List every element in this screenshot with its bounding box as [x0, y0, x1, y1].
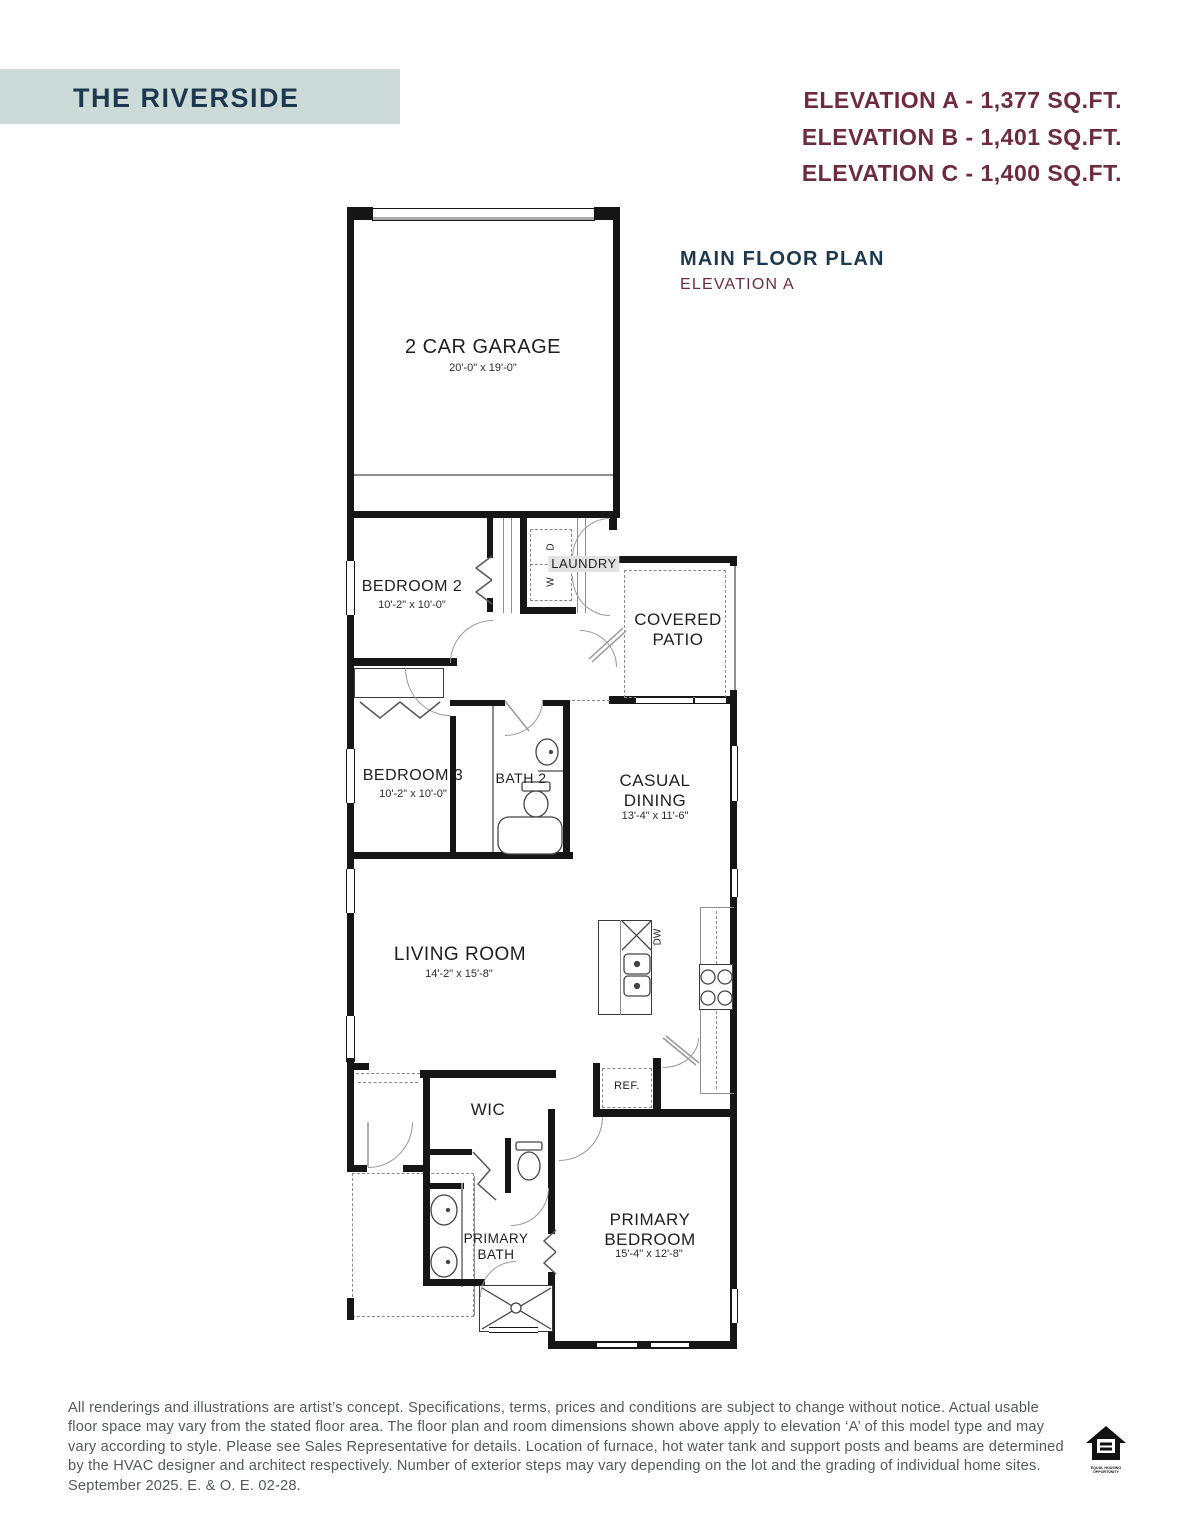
patio-edge: [734, 563, 736, 698]
window: [346, 561, 355, 615]
window: [346, 1016, 355, 1062]
window-sill: [637, 1341, 651, 1349]
wall: [420, 1070, 556, 1078]
door-arc: [480, 1261, 516, 1297]
living-room-label: LIVING ROOM: [394, 944, 526, 967]
faucet: [550, 751, 553, 754]
wall: [423, 1279, 485, 1286]
door-arc: [405, 668, 450, 716]
wic-label: WIC: [471, 1100, 506, 1120]
opening: [358, 1082, 418, 1083]
garage-apron-line: [354, 474, 613, 476]
bifold-closet-doors: [473, 1152, 496, 1200]
primary-bath-label: PRIMARY BATH: [456, 1231, 536, 1263]
primary-toilet: [518, 1152, 540, 1180]
covered-patio-label: COVERED PATIO: [623, 610, 733, 651]
counter-edge: [700, 1093, 734, 1094]
fridge-label: REF.: [614, 1080, 640, 1093]
brochure-page: { "header": { "title": "THE RIVERSIDE", …: [0, 0, 1187, 1536]
wall: [609, 518, 617, 530]
opening: [572, 700, 610, 701]
dryer-label: D: [546, 543, 557, 550]
bath2-label: BATH 2: [496, 770, 547, 787]
bath2-sink: [536, 739, 558, 765]
disclaimer-text: All renderings and illustrations are art…: [68, 1399, 1070, 1496]
wall: [593, 1109, 737, 1117]
island-divider: [620, 920, 621, 1015]
bifold-closet-doors: [476, 556, 492, 604]
door-arc: [368, 1122, 413, 1168]
window: [346, 869, 355, 913]
casual-dining-label: CASUAL DINING: [605, 771, 705, 812]
wall: [505, 1138, 511, 1193]
garage-label: 2 CAR GARAGE: [405, 335, 561, 359]
hall-line: [511, 518, 512, 613]
wall: [347, 1058, 354, 1170]
wall: [347, 207, 354, 518]
wall: [594, 207, 620, 220]
floor-plan: 2 CAR GARAGE 20'-0" x 19'-0" BEDROOM 2 1…: [0, 0, 1187, 1536]
door-arc: [505, 700, 543, 736]
window: [489, 1327, 538, 1333]
laundry-label: LAUNDRY: [548, 556, 619, 572]
wall: [520, 518, 527, 613]
window: [636, 697, 693, 704]
wall: [347, 1165, 367, 1172]
garage-dims: 20'-0" x 19'-0": [449, 362, 517, 374]
wall: [450, 716, 456, 858]
double-door-chevrons: [544, 1230, 556, 1274]
wall: [520, 607, 576, 614]
window: [695, 697, 726, 704]
window: [731, 1289, 738, 1323]
primary-bedroom-dims: 15'-4" x 12'-8": [615, 1248, 683, 1260]
dishwasher-label: DW: [653, 929, 664, 946]
wall: [730, 556, 737, 566]
window: [731, 746, 738, 801]
bedroom2-label: BEDROOM 2: [362, 577, 463, 596]
bedroom2-dims: 10'-2" x 10'-0": [378, 599, 446, 611]
wall: [487, 598, 493, 612]
wall: [487, 518, 493, 558]
plan-detail-layer: [0, 0, 1187, 1536]
bath-wall: [492, 700, 494, 852]
garage-door: [372, 208, 595, 221]
equal-housing-logo: EQUAL HOUSING OPPORTUNITY: [1084, 1426, 1128, 1475]
wall: [347, 207, 373, 220]
bath2-tub: [498, 817, 562, 854]
wall: [347, 658, 457, 666]
wall: [563, 700, 570, 859]
wall: [347, 1298, 354, 1320]
washer-label: W: [546, 577, 557, 586]
primary-toilet-tank: [516, 1142, 542, 1150]
wall: [430, 1149, 472, 1155]
casual-dining-dims: 13'-4" x 11'-6": [622, 810, 689, 822]
door-arc: [559, 1117, 603, 1161]
door-arc: [450, 620, 493, 663]
kitchen-island: [598, 920, 652, 1015]
window: [346, 749, 355, 803]
living-room-dims: 14'-2" x 15'-8": [425, 968, 493, 980]
counter-edge: [700, 907, 734, 908]
equal-housing-icon: [1084, 1426, 1128, 1462]
wall: [450, 700, 505, 706]
wall: [609, 556, 737, 563]
vanity-wall: [428, 1183, 464, 1189]
window: [731, 869, 738, 897]
wall: [548, 1109, 555, 1234]
door-arc: [511, 1188, 549, 1226]
bedroom3-dims: 10'-2" x 10'-0": [379, 788, 447, 800]
wall: [423, 1070, 430, 1286]
wall: [347, 1063, 369, 1070]
wall: [347, 511, 620, 518]
bath2-toilet: [524, 791, 548, 817]
cooktop: [699, 964, 733, 1010]
door-arc: [580, 630, 617, 667]
wall: [613, 207, 620, 518]
opening: [356, 1073, 420, 1074]
hall-line: [503, 518, 504, 613]
primary-bedroom-label: PRIMARY BEDROOM: [595, 1210, 705, 1251]
wall: [347, 852, 573, 859]
eho-text-line2: OPPORTUNITY: [1084, 1471, 1128, 1475]
door-arc: [663, 1038, 699, 1068]
bedroom3-label: BEDROOM 3: [363, 766, 464, 785]
